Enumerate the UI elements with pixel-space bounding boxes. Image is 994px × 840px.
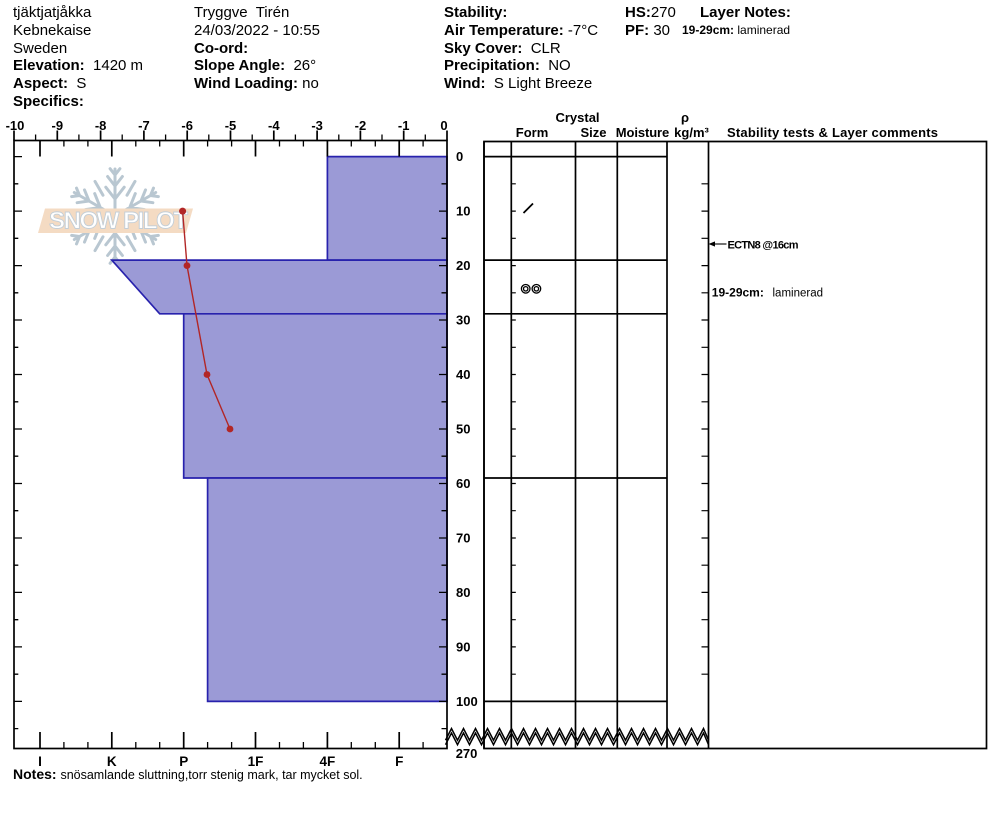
svg-text:90: 90	[456, 640, 470, 655]
svg-text:4F: 4F	[320, 754, 336, 769]
svg-text:Size: Size	[580, 125, 606, 140]
svg-text:ρ: ρ	[681, 110, 689, 125]
svg-text:0: 0	[456, 149, 463, 164]
svg-text:-9: -9	[52, 118, 64, 133]
svg-text:20: 20	[456, 258, 470, 273]
svg-text:-4: -4	[268, 118, 280, 133]
svg-text:-2: -2	[355, 118, 367, 133]
svg-text:-10: -10	[6, 118, 25, 133]
svg-text:-7: -7	[138, 118, 150, 133]
svg-text:-5: -5	[225, 118, 237, 133]
svg-text:60: 60	[456, 476, 470, 491]
svg-text:270: 270	[456, 746, 478, 761]
svg-text:Stability tests & Layer commen: Stability tests & Layer comments	[727, 125, 938, 140]
svg-text:K: K	[107, 754, 117, 769]
svg-text:1F: 1F	[248, 754, 264, 769]
svg-text:40: 40	[456, 367, 470, 382]
svg-text:-1: -1	[398, 118, 410, 133]
svg-text:10: 10	[456, 204, 470, 219]
svg-text:F: F	[395, 754, 403, 769]
svg-text:Form: Form	[516, 125, 549, 140]
svg-text:Crystal: Crystal	[555, 110, 599, 125]
svg-text:19-29cm:laminerad: 19-29cm:laminerad	[712, 286, 823, 300]
svg-text:30: 30	[456, 313, 470, 328]
svg-text:70: 70	[456, 531, 470, 546]
svg-text:kg/m³: kg/m³	[674, 125, 709, 140]
svg-text:-3: -3	[311, 118, 323, 133]
svg-text:80: 80	[456, 585, 470, 600]
svg-text:P: P	[179, 754, 188, 769]
svg-text:SNOW PILOT: SNOW PILOT	[49, 208, 189, 235]
svg-text:-6: -6	[181, 118, 193, 133]
svg-text:ECTN8 @16cm: ECTN8 @16cm	[728, 239, 799, 251]
svg-text:100: 100	[456, 694, 478, 709]
svg-text:Moisture: Moisture	[616, 125, 669, 140]
svg-text:0: 0	[440, 118, 447, 133]
svg-text:I: I	[38, 754, 42, 769]
svg-text:-8: -8	[95, 118, 107, 133]
svg-text:50: 50	[456, 422, 470, 437]
